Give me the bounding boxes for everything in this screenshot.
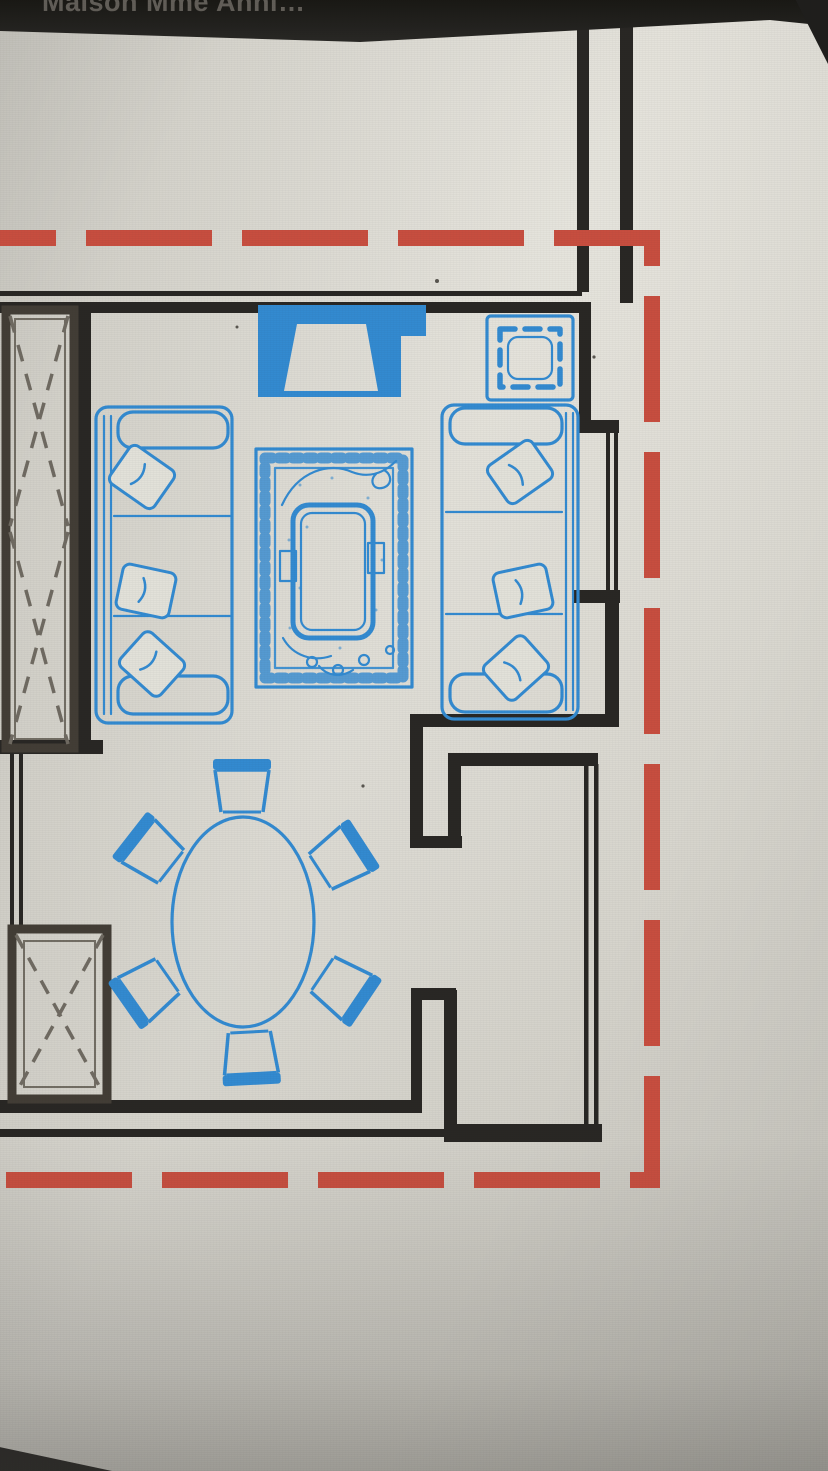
- floor-plan-canvas[interactable]: [0, 0, 828, 1471]
- dining-chair-icon[interactable]: [107, 952, 184, 1030]
- three-seat-sofa-right-icon[interactable]: [442, 405, 578, 719]
- coffee-table-icon[interactable]: [293, 505, 373, 638]
- dining-chair-icon[interactable]: [304, 818, 380, 896]
- closet-crossed-icon[interactable]: [12, 929, 107, 1099]
- dining-chair-icon[interactable]: [306, 950, 382, 1028]
- three-seat-sofa-left-icon[interactable]: [96, 407, 232, 723]
- throw-pillow-icon[interactable]: [492, 563, 554, 619]
- wardrobe-crossed-icon[interactable]: [6, 310, 74, 748]
- dining-chair-icon[interactable]: [213, 759, 271, 812]
- throw-pillow-icon[interactable]: [485, 438, 556, 507]
- window-title-clip: Maison Mme Anni…: [42, 0, 828, 20]
- square-side-table-icon[interactable]: [487, 316, 573, 400]
- throw-pillow-icon[interactable]: [117, 629, 188, 699]
- throw-pillow-icon[interactable]: [481, 633, 552, 703]
- screen-photo: Maison Mme Anni…: [0, 0, 828, 1471]
- patterned-rug-icon[interactable]: [256, 449, 412, 687]
- throw-pillow-icon[interactable]: [115, 563, 177, 619]
- tv-unit-icon[interactable]: [258, 305, 426, 397]
- oval-dining-table-icon[interactable]: [172, 817, 314, 1027]
- throw-pillow-icon[interactable]: [107, 443, 178, 512]
- dining-chair-icon[interactable]: [220, 1031, 281, 1087]
- dining-set[interactable]: [107, 759, 382, 1086]
- window-title: Maison Mme Anni…: [42, 0, 828, 18]
